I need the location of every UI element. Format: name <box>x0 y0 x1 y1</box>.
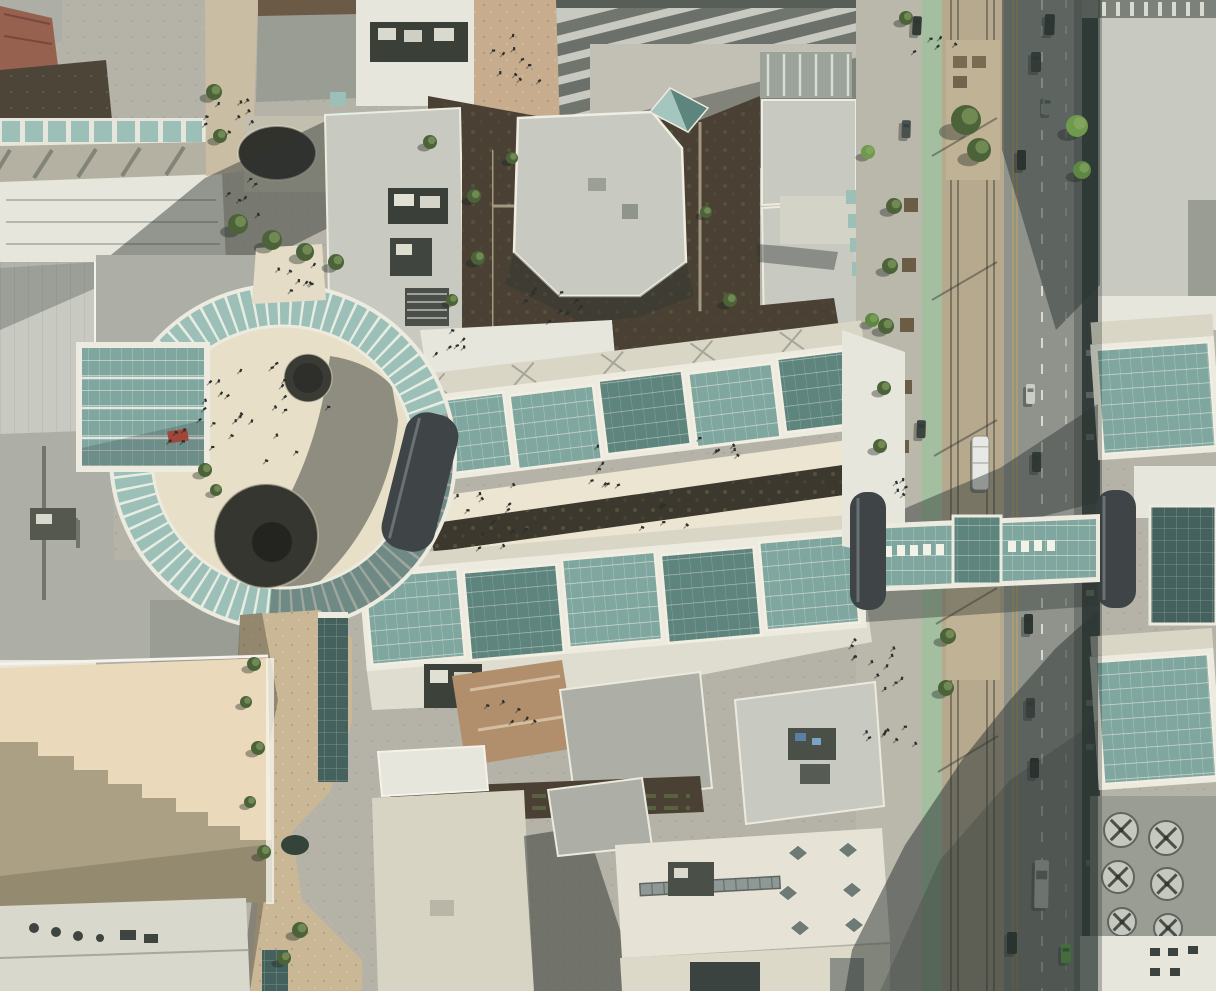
east-glass-wing-north <box>1089 314 1216 460</box>
terrace-texture <box>474 0 560 118</box>
fan-hub <box>1165 882 1170 887</box>
tree-highlight <box>450 295 457 302</box>
roof-box <box>588 178 606 191</box>
person <box>479 492 482 495</box>
fan-hub <box>1166 926 1171 931</box>
tree-highlight <box>1079 163 1089 173</box>
blue-equipment <box>812 738 821 745</box>
central-building-roof <box>514 112 686 296</box>
hvac-unit <box>36 514 52 524</box>
car <box>901 120 911 138</box>
person <box>492 49 495 52</box>
tree-highlight <box>256 742 264 750</box>
tree-highlight <box>472 190 480 198</box>
tree-highlight <box>269 232 280 243</box>
person <box>904 726 907 728</box>
tree-highlight <box>975 140 988 153</box>
hvac-unit <box>674 868 688 878</box>
car <box>912 16 922 35</box>
tree-highlight <box>878 440 886 448</box>
glass-panel <box>688 364 780 448</box>
person <box>298 279 300 282</box>
hvac-well <box>390 238 432 276</box>
tree-highlight <box>866 146 874 154</box>
hvac-unit <box>430 670 448 683</box>
tree-highlight <box>870 314 878 322</box>
person <box>698 437 701 439</box>
gray-roof-a <box>762 100 856 205</box>
person <box>456 494 458 497</box>
person <box>528 64 531 67</box>
tree-highlight <box>248 797 255 804</box>
tree-highlight <box>882 382 890 390</box>
person <box>580 305 583 308</box>
fountain-north-basin <box>293 363 323 393</box>
small-white-roof <box>378 746 488 796</box>
tree-highlight <box>244 697 251 704</box>
tree-highlight <box>728 294 736 302</box>
east-glass-wing-south <box>1088 628 1216 790</box>
tree-highlight <box>946 630 955 639</box>
fan-hub <box>1164 836 1169 841</box>
person <box>182 440 185 443</box>
tan-building <box>0 656 274 908</box>
person <box>884 687 886 690</box>
tree-highlight <box>214 485 221 492</box>
fan-hub <box>1120 920 1125 925</box>
tree-highlight <box>428 136 436 144</box>
aerial-photo-canvas <box>0 0 1216 991</box>
person <box>283 379 286 381</box>
glass-roof <box>1096 654 1216 784</box>
person <box>310 283 313 285</box>
tree-highlight <box>1074 117 1086 129</box>
dark-glass-atrium <box>1150 506 1216 624</box>
tan-east-parapet <box>266 658 274 904</box>
tree-highlight <box>203 464 211 472</box>
hvac-unit <box>404 30 422 42</box>
glass-panel <box>598 371 690 455</box>
person <box>463 345 465 348</box>
glass-panel <box>759 535 859 631</box>
hvac-unit <box>378 28 396 40</box>
tree-highlight <box>282 952 290 960</box>
west-glass-arm <box>76 342 210 472</box>
trellis-canopy <box>760 52 852 98</box>
glass-panel <box>510 386 602 470</box>
roof-box <box>430 900 454 916</box>
garden-green <box>462 140 492 346</box>
tree-highlight <box>962 108 979 125</box>
car-windshield <box>1026 618 1032 622</box>
hvac-well <box>668 862 714 896</box>
southwest-white-roof <box>0 898 250 991</box>
hvac-unit <box>434 28 454 41</box>
tree-highlight <box>212 86 221 95</box>
hvac-unit <box>396 244 412 255</box>
person <box>560 291 563 294</box>
person <box>211 446 214 448</box>
plaza-inset <box>1188 200 1216 304</box>
car-windshield <box>903 124 909 127</box>
gravel-texture <box>0 70 112 126</box>
car <box>1026 384 1035 404</box>
person <box>662 521 665 523</box>
tree-highlight <box>262 846 270 854</box>
glass-wall-cap <box>318 612 348 618</box>
person <box>183 428 185 431</box>
tree-highlight <box>944 682 953 691</box>
tree-highlight <box>884 320 893 329</box>
barrel-vault-west <box>850 492 886 610</box>
person <box>661 503 663 506</box>
person <box>513 47 515 50</box>
parapet-top-band <box>1098 0 1216 18</box>
person <box>327 406 330 409</box>
tree-highlight <box>510 153 517 160</box>
person <box>235 419 237 422</box>
person <box>902 478 905 481</box>
dark-roof-section <box>690 962 760 991</box>
platform-kiosk <box>953 76 967 88</box>
tree-highlight <box>334 256 343 265</box>
person <box>894 681 897 683</box>
person <box>854 656 857 658</box>
car <box>916 420 926 438</box>
platform-kiosk <box>953 56 967 68</box>
creek-pool <box>281 835 309 855</box>
bridge-center-bay <box>953 516 1001 584</box>
glass-panel <box>464 564 564 660</box>
car-windshield <box>914 20 920 24</box>
roof-box <box>622 204 638 219</box>
tree-highlight <box>235 216 246 227</box>
teal-awning-row <box>2 121 202 142</box>
hvac-well <box>800 764 830 784</box>
tree-highlight <box>892 200 901 209</box>
tree-highlight <box>302 245 312 255</box>
aerial-photo <box>0 0 1216 991</box>
tree-highlight <box>476 252 484 260</box>
hvac-unit <box>394 194 414 206</box>
platform-kiosk <box>972 56 986 68</box>
shop-roof <box>256 14 360 102</box>
hvac-unit <box>420 196 440 208</box>
creek-glass-wall <box>318 616 348 782</box>
tree-highlight <box>704 207 711 214</box>
tree-highlight <box>298 924 307 933</box>
fountain-south-basin <box>252 522 292 562</box>
tree-highlight <box>888 260 897 269</box>
car-windshield <box>1028 388 1034 392</box>
person <box>733 448 735 451</box>
blue-equipment <box>795 733 806 741</box>
glass-panel <box>562 552 662 648</box>
person <box>499 71 501 74</box>
person <box>929 38 932 40</box>
tree-highlight <box>904 12 912 20</box>
car <box>1024 614 1033 634</box>
glass-panel <box>661 547 761 643</box>
tree-highlight <box>252 658 260 666</box>
person <box>284 409 287 412</box>
glass-roof <box>1097 342 1216 454</box>
large-cream-roof <box>372 790 534 991</box>
car-windshield <box>918 424 924 427</box>
fan-hub <box>1119 828 1124 833</box>
person <box>597 444 600 447</box>
tree-highlight <box>218 130 226 138</box>
fan-hub <box>1116 875 1121 880</box>
